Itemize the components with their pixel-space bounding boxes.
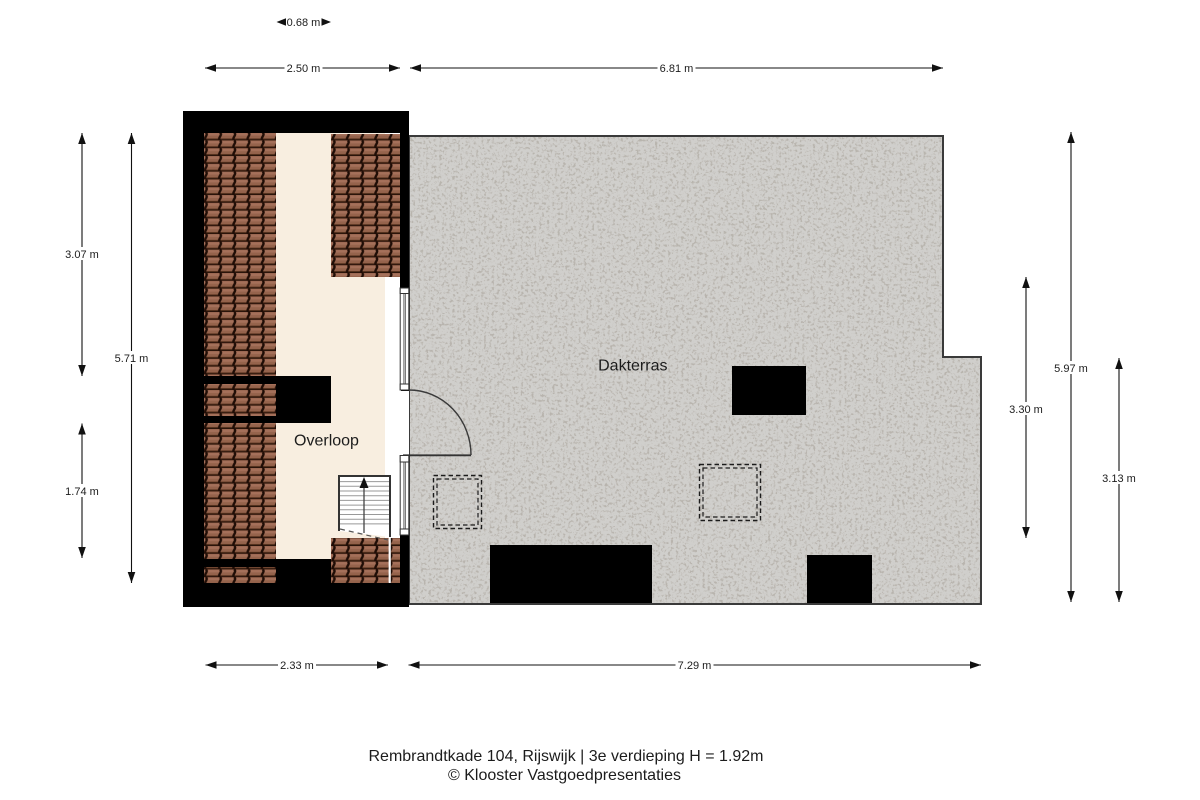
- svg-text:6.81 m: 6.81 m: [660, 63, 694, 75]
- svg-text:5.71 m: 5.71 m: [115, 353, 149, 365]
- svg-text:3.13 m: 3.13 m: [1102, 473, 1136, 485]
- svg-text:2.50 m: 2.50 m: [287, 63, 321, 75]
- svg-text:1.74 m: 1.74 m: [65, 486, 99, 498]
- svg-text:7.29 m: 7.29 m: [678, 660, 712, 672]
- svg-text:Overloop: Overloop: [294, 433, 359, 450]
- svg-text:© Klooster Vastgoedpresentatie: © Klooster Vastgoedpresentaties: [448, 767, 681, 784]
- svg-text:3.07 m: 3.07 m: [65, 249, 99, 261]
- svg-text:3.30 m: 3.30 m: [1009, 404, 1043, 416]
- svg-text:2.33 m: 2.33 m: [280, 660, 314, 672]
- svg-text:Dakterras: Dakterras: [598, 358, 667, 375]
- svg-text:Rembrandtkade 104, Rijswijk |: Rembrandtkade 104, Rijswijk | 3e verdiep…: [368, 748, 763, 765]
- svg-text:0.68 m: 0.68 m: [287, 17, 321, 29]
- svg-text:5.97 m: 5.97 m: [1054, 363, 1088, 375]
